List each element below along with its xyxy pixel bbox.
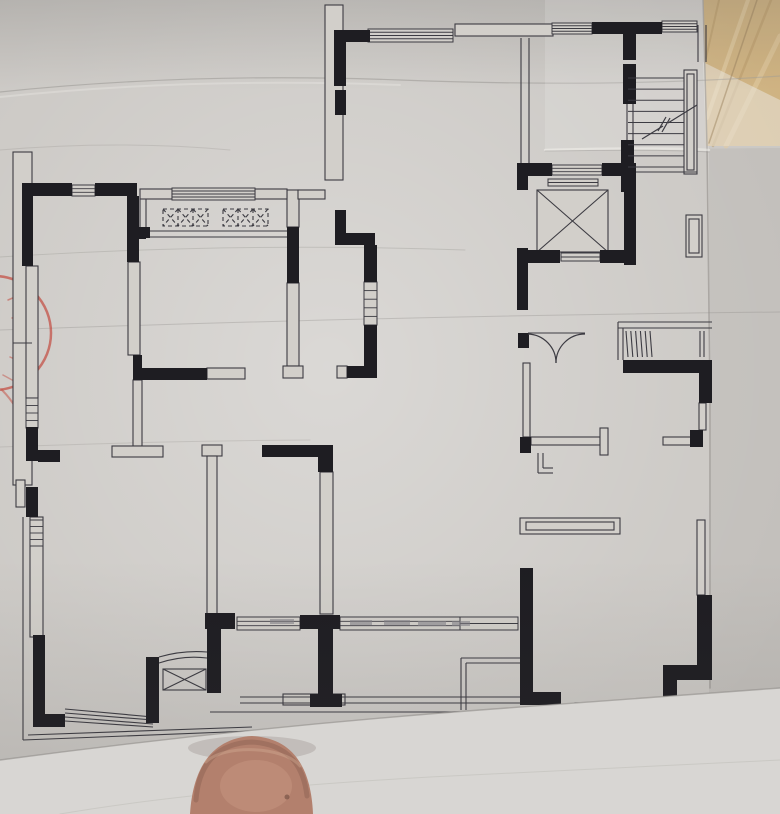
photo-of-floor-plan [0,0,780,814]
wall-outline [16,480,25,507]
wall-segment [22,183,72,196]
wall-segment [623,360,712,373]
wall-segment [364,245,377,282]
fingertip [188,736,316,814]
wall-outline [140,189,172,199]
wall-outline [128,262,140,355]
wall-outline [287,190,299,227]
wall-segment [517,248,528,310]
wall-segment [262,445,324,457]
wall-segment [334,30,346,86]
wall-outline [699,403,706,430]
wall-segment [690,430,703,447]
wall-segment [26,427,38,461]
wall-segment [38,450,60,462]
wall-segment [520,437,531,453]
wall-outline [298,190,325,199]
finger-shape [220,760,292,812]
wall-segment [623,64,636,104]
wall-segment [517,176,528,190]
wall-outline [600,428,608,455]
wall-segment [133,368,207,380]
window-band [364,282,377,325]
wall-outline [207,368,245,379]
wall-segment [527,250,560,263]
wall-segment [517,163,552,176]
wall-segment [518,333,529,348]
wall-outline [689,219,699,253]
window-band [72,185,95,196]
wall-segment [287,227,299,283]
wall-outline [455,24,553,36]
wall-outline [283,366,303,378]
wall-outline [255,189,287,199]
wall-outline [112,446,163,457]
wall-segment [623,34,636,60]
wall-outline [526,522,614,530]
wall-outline [531,437,600,445]
wall-segment [600,250,636,263]
wall-outline [26,266,38,398]
window-band [552,165,602,175]
wall-segment [95,183,137,196]
floor-plan-photo-canvas [0,0,780,814]
wall-segment [699,373,712,403]
wall-outline [523,363,530,437]
wall-segment [335,233,375,245]
wall-segment [318,445,333,472]
wall-segment [22,196,33,266]
wall-segment [130,227,150,238]
finger-shape [285,795,290,800]
wall-segment [347,366,377,378]
wall-outline [202,445,222,456]
wall-outline [337,366,347,378]
wall-segment [26,487,38,517]
wall-segment [364,325,377,368]
wall-outline [133,380,142,446]
wall-outline [687,74,694,170]
wall-segment [335,90,346,115]
wall-segment [592,22,662,34]
wall-segment [621,140,634,192]
wall-outline [287,283,299,366]
